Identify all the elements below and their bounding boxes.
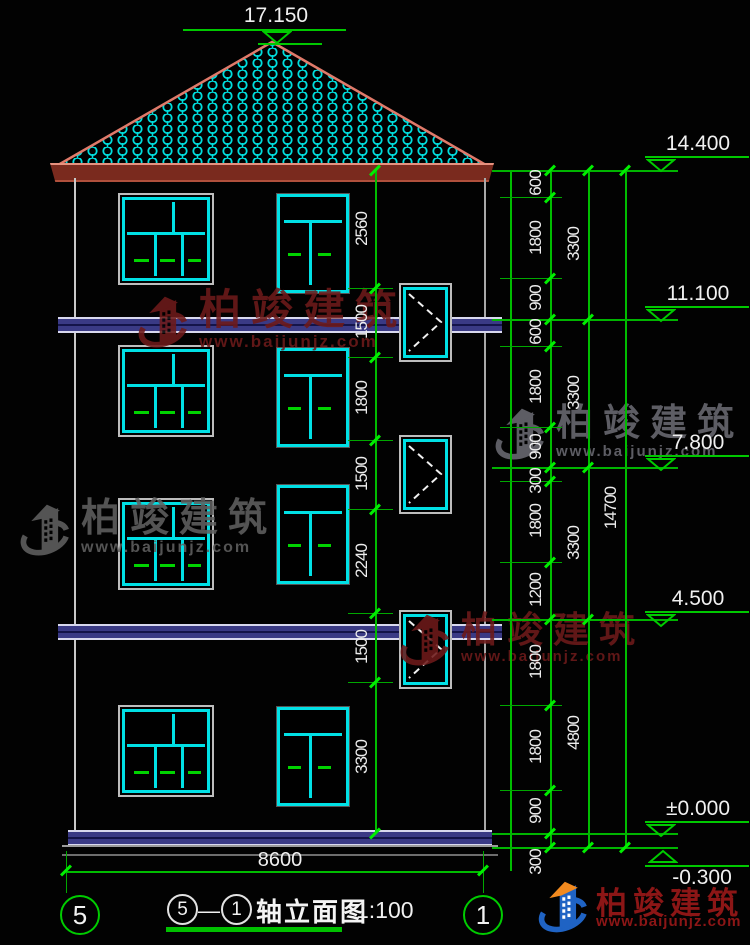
segment-dim-label: 1800 [525,630,547,694]
total-dim-label: 14700 [600,476,622,540]
window-large [118,705,214,797]
extension-line [348,613,393,614]
floor-dim-label: 3300 [563,511,585,575]
dimension-chain-line [625,170,627,848]
segment-dim-label: 1200 [525,558,547,622]
elevation-value-ground: ±0.000 [648,797,748,821]
segment-dim-label: 1800 [525,206,547,270]
facade-dim-label: 3300 [351,725,373,789]
wall-right [484,178,486,846]
facade-dim-label: 2560 [351,197,373,261]
floor-dim-label: 4800 [563,701,585,765]
window-medium [277,485,349,584]
watermark-url: www.baijunjz.com [461,648,645,665]
extension-line [348,682,393,683]
title-bubble-right-label: 1 [231,899,242,921]
title-underline [166,927,342,932]
segment-dim-label: 1800 [525,715,547,779]
elevation-triangle-icon [646,308,676,328]
window-large [118,193,214,285]
extension-line [348,357,393,358]
extension-line [348,288,393,289]
watermark-url: www.baijunjz.com [81,539,277,557]
axis-bubble-right-label: 1 [476,900,490,931]
elevation-drawing: 柏竣建筑www.baijunjz.com柏竣建筑www.baijunjz.com… [0,0,750,945]
facade-dim-label: 1500 [351,290,373,354]
elevation-value-roof-top: 17.150 [211,4,341,28]
window-stair [399,435,452,514]
watermark-logo-icon [138,288,190,352]
company-logo-url: www.baijunjz.com [596,913,741,930]
title-separator: — [198,898,220,924]
roof [40,26,510,180]
roof-eave [50,163,494,182]
dimension-chain-line [588,170,590,848]
window-medium [277,194,349,293]
elevation-value-floor2: 7.800 [648,431,748,455]
facade-dim-label: 2240 [351,529,373,593]
elevation-marker-line [258,43,322,45]
window-medium [277,348,349,447]
elevation-triangle-icon [646,158,676,178]
segment-dim-label: 1800 [525,489,547,553]
elevation-triangle-icon [646,613,676,633]
watermark: 柏竣建筑www.baijunjz.com [400,606,645,670]
segment-dim-label: 1800 [525,355,547,419]
company-logo-icon [538,874,590,936]
dimension-chain-line [510,170,512,871]
title-bubble-left-label: 5 [177,899,188,921]
dimension-chain-line [375,170,377,834]
drawing-title: 轴立面图 [256,892,368,929]
facade-dim-label: 1500 [351,442,373,506]
roof-tiles [58,42,486,165]
watermark-logo-icon [20,496,72,560]
base-slab [68,830,492,846]
extension-line [348,509,393,510]
floor-dim-label: 3300 [563,361,585,425]
watermark-brand: 柏竣建筑 [81,499,277,540]
watermark-logo-icon [400,606,452,670]
axis-bubble-left: 5 [60,895,100,935]
dimension-chain-line [550,170,552,848]
facade-dim-label: 1800 [351,366,373,430]
title-bubble-left: 5 [167,894,198,925]
drawing-scale: 1:100 [356,897,414,924]
floor-dim-label: 3300 [563,212,585,276]
extension-line [500,705,562,706]
window-large [118,345,214,437]
title-bubble-right: 1 [221,894,252,925]
axis-bubble-right: 1 [463,895,503,935]
watermark: 柏竣建筑www.baijunjz.com [20,496,277,560]
facade-dim-label: 1500 [351,615,373,679]
elevation-value-floor1: 4.500 [648,587,748,611]
elevation-value-eave: 14.400 [648,132,748,156]
elevation-triangle-icon [646,457,676,477]
elevation-triangle-icon [646,823,676,843]
extension-line [348,440,393,441]
elevation-value-floor3: 11.100 [648,282,748,306]
window-medium [277,707,349,806]
width-dimension-value: 8600 [250,849,310,872]
axis-bubble-left-label: 5 [73,900,87,931]
